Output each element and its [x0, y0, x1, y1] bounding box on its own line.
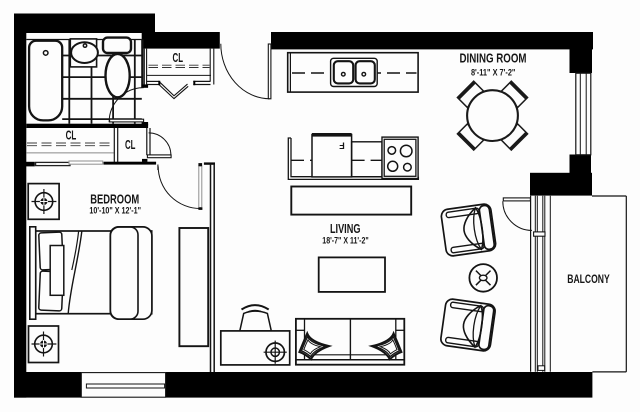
svg-text:18'-7" X 11'-2": 18'-7" X 11'-2"	[322, 236, 368, 247]
svg-text:10'-10" X 12'-1": 10'-10" X 12'-1"	[89, 205, 141, 216]
svg-text:DINING ROOM: DINING ROOM	[460, 52, 527, 66]
svg-text:BALCONY: BALCONY	[567, 274, 610, 286]
svg-text:8'-11" X 7'-2": 8'-11" X 7'-2"	[471, 67, 516, 78]
svg-text:BEDROOM: BEDROOM	[90, 193, 139, 207]
svg-text:CL: CL	[125, 137, 136, 152]
svg-text:CL: CL	[173, 50, 184, 65]
svg-text:CL: CL	[66, 128, 77, 143]
svg-text:F: F	[339, 140, 345, 150]
svg-text:LIVING: LIVING	[330, 222, 361, 236]
